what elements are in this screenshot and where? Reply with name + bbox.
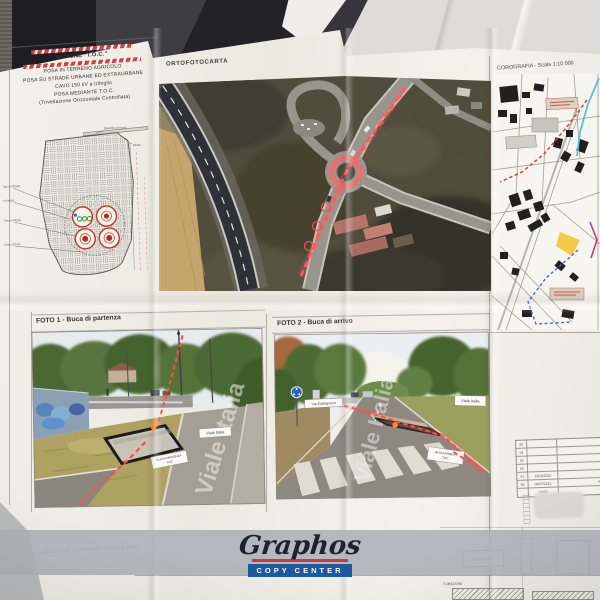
titleblock-line [440,527,600,528]
revision-table: 05 04 03 02 0114/10/2022Aggiornamento 00… [515,436,600,498]
diagram-label: Binder [133,143,141,147]
rev-cell: 03 [517,457,528,464]
graphos-logo: Graphos COPY CENTER [225,533,375,577]
diagram-label: n.4 tritubi [3,198,15,202]
diagram-label: Tappetino di usura [103,125,126,130]
date-cell: 14/10/2022 [528,471,558,479]
stamp-blur [534,491,585,519]
tubazioni-label: TUBAZIONI [443,582,462,586]
rev-cell: 02 [517,465,528,472]
copy-center-bar: COPY CENTER [248,564,352,577]
tubazioni-hatch-area [532,591,594,600]
desc-cell [557,449,600,451]
desc-cell [558,465,600,467]
corografia-bottom-line [490,332,600,333]
diagram-label: Cavo 150 kV [4,242,20,247]
panel-sezione-toc: SEZIONE "T.O.C." POSA IN TERRENO AGRICOL… [6,41,160,110]
rev-cell: 05 [516,441,527,448]
date-cell: 09/07/2021 [528,479,558,487]
titleblock-side-text-strip [522,494,530,524]
corografia-map [492,74,600,330]
foto2-street-label: Viale Italia [461,398,480,403]
desc-cell [558,457,600,459]
date-cell [527,439,557,447]
photographed-plan-scene: SEZIONE "T.O.C." POSA IN TERRENO AGRICOL… [0,0,600,600]
date-cell [528,463,558,471]
desc-cell [557,441,600,443]
diagram-label: Tubo in PEAD [3,218,21,223]
desc-cell: Prima emissione [558,477,600,487]
date-cell [528,455,558,463]
rev-cell: 04 [516,449,527,456]
aerial-photo [159,76,491,291]
date-cell [527,447,557,455]
foto-panel-divider [266,314,267,512]
diagram-label: Tubo in PEAD [2,184,20,189]
rev-cell: 00 [517,480,528,487]
watermark-band: Graphos COPY CENTER [0,530,600,575]
foto1-street-photo: Viale Italia Viale Italia BUCA PARTENZA … [31,328,265,508]
graphos-brand-text: Graphos [224,533,377,559]
tubazioni-hatch-area [452,588,524,600]
foto2-street-photo: Viale Italia Via Caltagirone Viale Itali… [274,332,491,500]
toc-cross-section-diagram: Tappetino di usura Binder Tubo in PEAD n… [0,121,159,284]
rev-cell: 01 [517,472,528,479]
